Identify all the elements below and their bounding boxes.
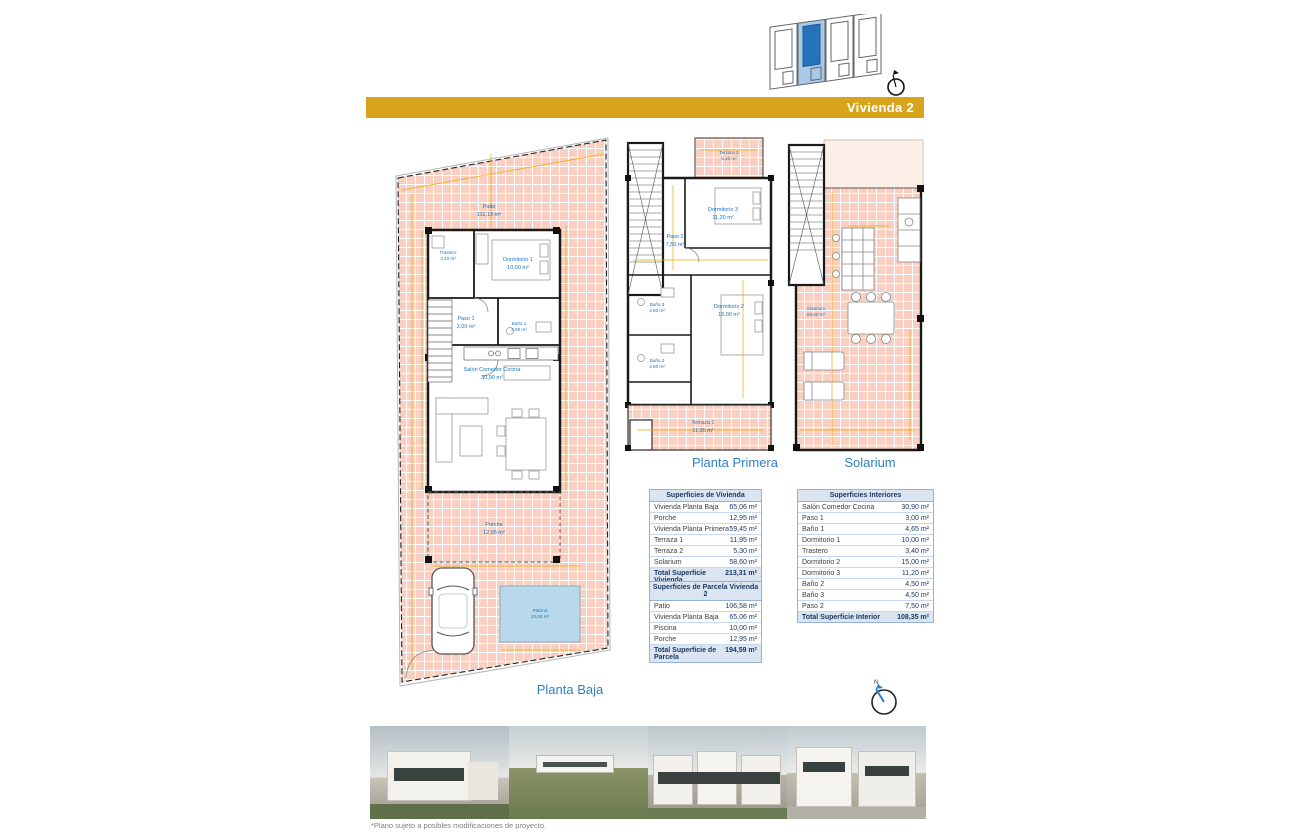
row-value: 4,50 m² (905, 592, 929, 599)
table-row: Dormitorio 215,00 m² (798, 557, 933, 568)
room-label-porche: Porche (485, 522, 502, 528)
roof-area (824, 140, 923, 188)
row-label: Solarium (654, 559, 682, 566)
table-row: Baño 14,65 m² (798, 524, 933, 535)
row-value: 12,95 m² (729, 515, 757, 522)
washer-icon (432, 236, 444, 248)
room-label-solarium: Solarium (807, 306, 825, 311)
row-value: 59,45 m² (729, 526, 757, 533)
table-row: Vivienda Planta Primera59,45 m² (650, 524, 761, 535)
room-area-piscina: 10,00 m² (531, 614, 550, 619)
table-row: Trastero3,40 m² (798, 546, 933, 557)
room-label-paso2: Paso 2 (666, 234, 683, 240)
row-value: 30,90 m² (901, 504, 929, 511)
row-label: Terraza 1 (654, 537, 683, 544)
room-area-dormitorio2: 15,00 m² (718, 312, 740, 318)
building-planta-baja (425, 227, 560, 493)
row-label: Dormitorio 2 (802, 559, 840, 566)
room-label-dormitorio2: Dormitorio 2 (714, 304, 744, 310)
plan-planta-primera: Terraza 2 5,30 m² Dormitorio 3 11,20 m² … (623, 130, 780, 465)
room-area-trastero: 3,40 m² (440, 256, 456, 261)
stairs-icon (789, 145, 824, 285)
row-value: 65,06 m² (729, 614, 757, 621)
row-label: Terraza 2 (654, 548, 683, 555)
room-label-terraza1: Terraza 1 (692, 420, 715, 426)
row-label: Baño 2 (802, 581, 824, 588)
plan-solarium: Solarium 58,60 m² (786, 130, 928, 465)
render-photo-1 (370, 726, 509, 819)
table-row: Vivienda Planta Baja65,06 m² (650, 612, 761, 623)
room-label-paso1: Paso 1 (457, 316, 474, 322)
row-label: Paso 1 (802, 515, 824, 522)
room-area-paso2: 7,50 m² (666, 242, 685, 248)
kitchen-counter (464, 347, 558, 360)
room-label-dormitorio3: Dormitorio 3 (708, 207, 738, 213)
room-label-patio: Patio (483, 204, 496, 210)
table-superficies-parcela: Superficies de Parcela Vivienda 2 Patio1… (649, 581, 762, 663)
table-row: Terraza 111,95 m² (650, 535, 761, 546)
plan-page: Vivienda 2 (0, 0, 1290, 840)
disclaimer-note: *Plano sujeto a posibles modificaciones … (371, 821, 546, 830)
room-area-porche: 12,95 m² (483, 530, 505, 536)
room-label-piscina: Piscina (533, 608, 548, 613)
table-row: Vivienda Planta Baja65,06 m² (650, 502, 761, 513)
row-label: Patio (654, 603, 670, 610)
car-icon (429, 568, 477, 654)
table-superficies-vivienda: Superficies de Vivienda Vivienda Planta … (649, 489, 762, 586)
row-value: 4,50 m² (905, 581, 929, 588)
row-label: Porche (654, 636, 676, 643)
row-label: Vivienda Planta Baja (654, 504, 718, 511)
row-label: Total Superficie Interior (802, 614, 880, 621)
kitchenette-icon (898, 198, 920, 262)
row-label: Porche (654, 515, 676, 522)
dining-table-icon (848, 293, 894, 344)
row-label: Trastero (802, 548, 828, 555)
row-label: Salón Comedor Cocina (802, 504, 874, 511)
table-row: Baño 34,50 m² (798, 590, 933, 601)
row-value: 4,65 m² (905, 526, 929, 533)
row-label: Vivienda Planta Baja (654, 614, 718, 621)
stairs-icon (428, 300, 452, 382)
toilet-icon (638, 299, 645, 306)
table-row: Paso 27,50 m² (798, 601, 933, 612)
table-row: Piscina10,00 m² (650, 623, 761, 634)
row-label: Baño 1 (802, 526, 824, 533)
banner-vivienda: Vivienda 2 (366, 97, 924, 118)
table-total-row: Total Superficie Interior108,35 m² (798, 612, 933, 622)
site-plot-2-highlighted (798, 19, 825, 85)
render-photo-2 (509, 726, 648, 819)
room-label-trastero: Trastero (440, 250, 457, 255)
window-band (803, 762, 845, 772)
room-label-bano3: Baño 3 (650, 302, 665, 307)
toilet-icon (638, 355, 645, 362)
row-value: 194,59 m² (725, 647, 757, 661)
table-row: Dormitorio 311,20 m² (798, 568, 933, 579)
room-area-salon: 30,90 m² (481, 375, 503, 381)
building-shape (859, 752, 915, 806)
row-value: 3,40 m² (905, 548, 929, 555)
row-value: 108,35 m² (897, 614, 929, 621)
row-label: Dormitorio 3 (802, 570, 840, 577)
room-label-bano1: Baño 1 (512, 321, 527, 326)
sink-icon (661, 344, 674, 353)
compass-icon: N (862, 672, 907, 722)
table-superficies-interiores: Superficies Interiores Salón Comedor Coc… (797, 489, 934, 623)
row-value: 11,95 m² (730, 537, 757, 544)
row-label: Total Superficie de Parcela (654, 647, 725, 661)
row-label: Baño 3 (802, 592, 824, 599)
row-label: Vivienda Planta Primera (654, 526, 729, 533)
building-shape (468, 762, 498, 800)
plan-planta-baja: Patio 111,13 m² Trastero 3,40 m² Dormito… (388, 130, 620, 702)
window-band (658, 772, 780, 784)
row-value: 3,00 m² (905, 515, 929, 522)
table-row: Baño 24,50 m² (798, 579, 933, 590)
site-plot-3 (826, 15, 853, 81)
sink-icon (661, 288, 674, 297)
row-label: Paso 2 (802, 603, 824, 610)
room-label-dormitorio1: Dormitorio 1 (503, 257, 533, 263)
table-row: Paso 13,00 m² (798, 513, 933, 524)
row-value: 10,00 m² (901, 537, 929, 544)
window-band (543, 762, 607, 767)
stairs-icon (628, 143, 663, 295)
compass-icon (888, 70, 904, 95)
room-area-terraza2: 5,30 m² (721, 156, 737, 161)
row-value: 106,58 m² (725, 603, 757, 610)
plan-title-solarium: Solarium (810, 455, 930, 470)
row-value: 15,00 m² (901, 559, 929, 566)
room-area-bano1: 4,65 m² (511, 327, 527, 332)
table-title: Superficies de Parcela Vivienda 2 (650, 582, 761, 601)
table-row: Salón Comedor Cocina30,90 m² (798, 502, 933, 513)
room-area-paso1: 3,00 m² (457, 324, 476, 330)
pavement (787, 807, 926, 819)
sink-icon (536, 322, 551, 332)
table-row: Dormitorio 110,00 m² (798, 535, 933, 546)
room-area-dormitorio3: 11,20 m² (712, 215, 733, 221)
building-shape (797, 748, 851, 806)
table-row: Patio106,58 m² (650, 601, 761, 612)
room-area-terraza1: 11,95 m² (692, 428, 713, 434)
table-title: Superficies Interiores (798, 490, 933, 502)
plan-title-planta-baja: Planta Baja (505, 682, 635, 697)
room-area-solarium: 58,60 m² (807, 312, 826, 317)
render-photo-4 (787, 726, 926, 819)
row-value: 11,20 m² (902, 570, 929, 577)
room-label-salon: Salón Comedor Cocina (464, 367, 522, 373)
room-label-terraza2: Terraza 2 (719, 150, 739, 155)
table-total-row: Total Superficie de Parcela194,59 m² (650, 645, 761, 662)
row-value: 58,60 m² (729, 559, 757, 566)
table-row: Porche12,95 m² (650, 634, 761, 645)
table-row: Solarium58,60 m² (650, 557, 761, 568)
room-area-dormitorio1: 10,00 m² (507, 265, 529, 271)
room-label-bano2: Baño 2 (650, 358, 665, 363)
row-label: Piscina (654, 625, 677, 632)
greenery (370, 804, 509, 819)
row-value: 5,30 m² (733, 548, 757, 555)
window-band (394, 768, 464, 781)
table-row: Porche12,95 m² (650, 513, 761, 524)
site-plot-4 (854, 14, 881, 77)
room-area-bano3: 4,50 m² (649, 308, 665, 313)
table-row: Terraza 25,30 m² (650, 546, 761, 557)
greenery (648, 808, 787, 819)
row-value: 7,50 m² (905, 603, 929, 610)
wardrobe-icon (476, 234, 488, 264)
site-plot-1 (770, 23, 797, 89)
room-area-bano2: 4,50 m² (649, 364, 665, 369)
row-label: Dormitorio 1 (802, 537, 840, 544)
room-area-patio: 111,13 m² (477, 212, 501, 218)
row-value: 65,06 m² (729, 504, 757, 511)
row-value: 12,95 m² (729, 636, 757, 643)
render-photo-3 (648, 726, 787, 819)
table-title: Superficies de Vivienda (650, 490, 761, 502)
site-plan-diagram (762, 14, 912, 102)
hillside (509, 768, 648, 819)
window-band (865, 766, 909, 776)
row-value: 10,00 m² (729, 625, 757, 632)
sofa-icon (436, 398, 488, 462)
